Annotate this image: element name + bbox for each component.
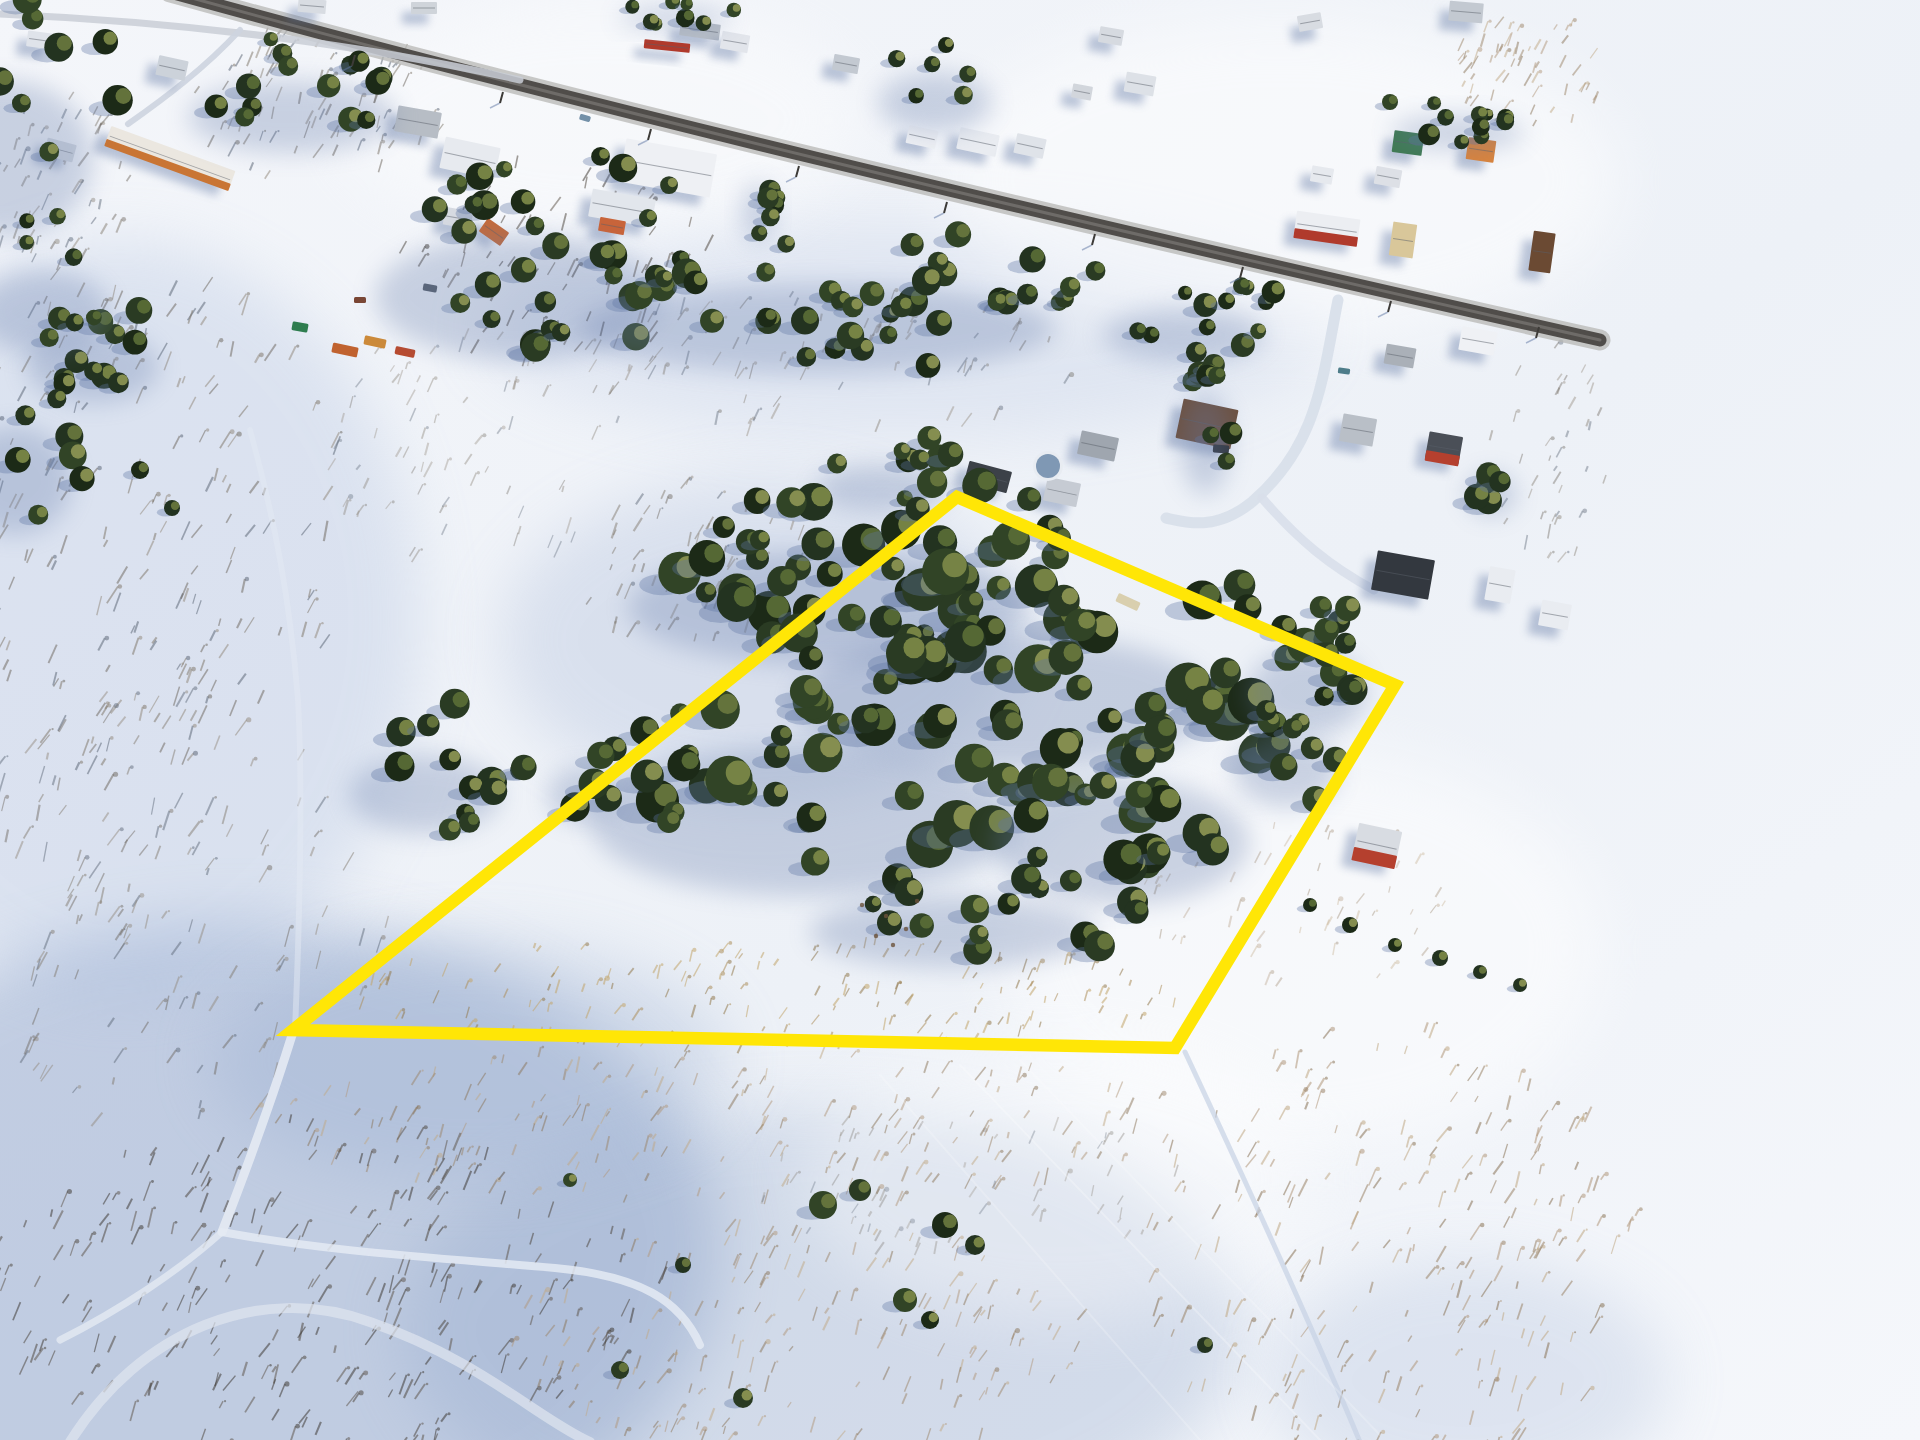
ground-debris <box>904 927 908 931</box>
ground-debris <box>874 934 878 938</box>
aerial-photo-canvas <box>0 0 1920 1440</box>
ground-debris <box>884 914 888 918</box>
vehicle <box>354 297 366 303</box>
ground-debris <box>891 943 895 947</box>
aerial-photo <box>0 0 1920 1440</box>
ground-debris <box>860 903 864 907</box>
round-pool <box>1036 454 1060 478</box>
ground-debris <box>915 899 919 903</box>
